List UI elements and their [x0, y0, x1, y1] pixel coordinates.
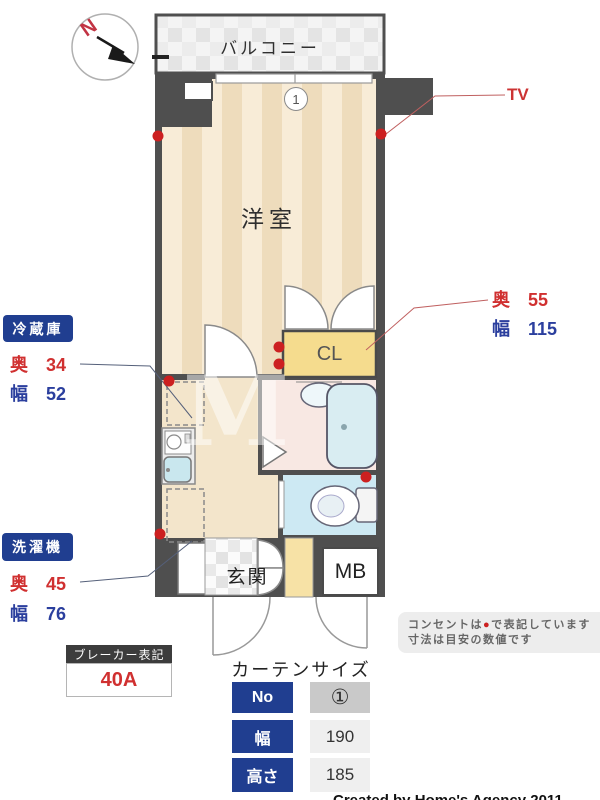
- closet-label: CL: [283, 343, 376, 366]
- depth-label: 奥: [492, 286, 516, 312]
- wall-pillar-tv: [385, 78, 433, 115]
- balcony-label: バルコニー: [155, 34, 385, 59]
- toilet-door: [279, 481, 284, 528]
- width-value: 115: [528, 319, 557, 340]
- washer-title-badge: 洗濯機: [2, 533, 73, 561]
- depth-value: 55: [528, 290, 548, 311]
- curtain-row-width-value: 190: [310, 720, 370, 753]
- bathtub-drain: [341, 424, 347, 430]
- outlet-dot: [155, 529, 166, 540]
- legend-note-line1: コンセントは●で表記しています: [408, 618, 600, 633]
- fridge-width-annotation: 幅 52: [10, 380, 66, 406]
- breaker-title: ブレーカー表記: [66, 645, 172, 663]
- breaker-value: 40A: [66, 663, 172, 697]
- outlet-dot: [361, 472, 372, 483]
- fridge-depth-annotation: 奥 34: [10, 351, 66, 377]
- washer-depth-annotation: 奥 45: [10, 570, 66, 596]
- width-value: 76: [46, 604, 66, 625]
- watermark: M: [183, 355, 289, 468]
- closet-depth-annotation: 奥 55: [492, 286, 548, 312]
- depth-label: 奥: [10, 351, 34, 377]
- curtain-row-width-label: 幅: [232, 720, 293, 753]
- fridge-title-badge: 冷蔵庫: [3, 315, 73, 342]
- small-window: [184, 82, 212, 100]
- tv-label: TV: [507, 85, 529, 105]
- curtain-table-title: カーテンサイズ: [222, 656, 380, 682]
- legend-note-line2: 寸法は目安の数値です: [408, 633, 600, 648]
- room-label: 洋室: [162, 200, 376, 234]
- curtain-window-marker: 1: [284, 87, 308, 111]
- width-label: 幅: [10, 600, 34, 626]
- width-label: 幅: [492, 315, 516, 341]
- outlet-dot: [376, 129, 387, 140]
- washer-width-annotation: 幅 76: [10, 600, 66, 626]
- depth-value: 45: [46, 574, 66, 595]
- outlet-dot: [164, 376, 175, 387]
- curtain-row-no-value: ①: [310, 682, 370, 713]
- outlet-symbol: ●: [483, 619, 491, 631]
- entrance-door-swing: [213, 597, 270, 655]
- width-value: 52: [46, 384, 66, 405]
- curtain-row-height-label: 高さ: [232, 758, 293, 792]
- curtain-row-no-label: No: [232, 682, 293, 713]
- width-label: 幅: [10, 380, 34, 406]
- outlet-dot: [153, 131, 164, 142]
- meter-box-label: MB: [323, 560, 378, 584]
- bathtub: [327, 384, 377, 468]
- depth-label: 奥: [10, 570, 34, 596]
- closet-width-annotation: 幅 115: [492, 315, 557, 341]
- curtain-row-height-value: 185: [310, 758, 370, 792]
- balcony-window: [216, 74, 372, 83]
- footer-credit: Created by Home's Agency 2011: [333, 792, 563, 800]
- meter-box-door-swing: [316, 597, 367, 648]
- legend-note: コンセントは●で表記しています 寸法は目安の数値です: [398, 612, 600, 653]
- floor-plan-page: N バルコニー 1 洋室 CL 玄関 MB TV 奥 55 幅 115 冷蔵庫 …: [0, 0, 600, 800]
- depth-value: 34: [46, 355, 66, 376]
- entrance-label: 玄関: [200, 562, 295, 589]
